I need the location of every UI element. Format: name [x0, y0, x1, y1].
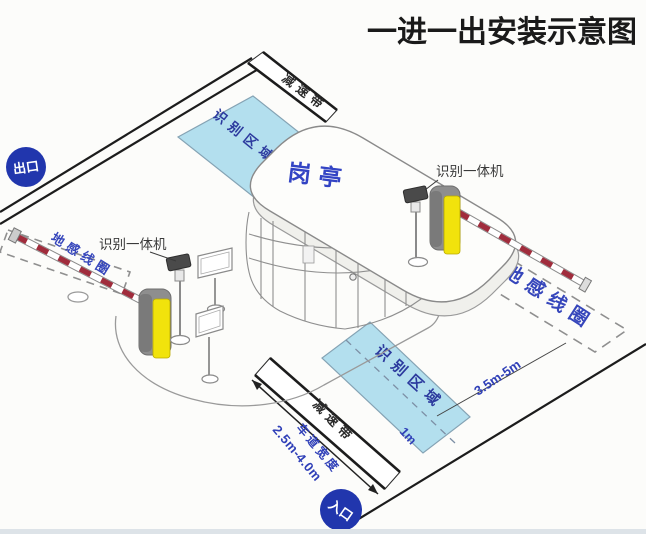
- bottom-edge-strip: [0, 529, 646, 534]
- installation-diagram: 一进一出安装示意图 减速带 识别区域 地感线圈 减速带: [0, 0, 646, 534]
- entry-camera-label: 识别一体机: [436, 164, 504, 179]
- exit-barrier-machine: [139, 289, 171, 358]
- booth-interior-equipment: [303, 246, 314, 263]
- exit-badge: 出口: [6, 147, 46, 187]
- entrance-badge: 入口: [320, 489, 362, 531]
- door-knob: [350, 274, 356, 280]
- arm-rest-base: [68, 292, 88, 302]
- exit-camera-label: 识别一体机: [99, 237, 167, 252]
- page-title: 一进一出安装示意图: [367, 15, 637, 49]
- entry-barrier-machine: [430, 186, 460, 254]
